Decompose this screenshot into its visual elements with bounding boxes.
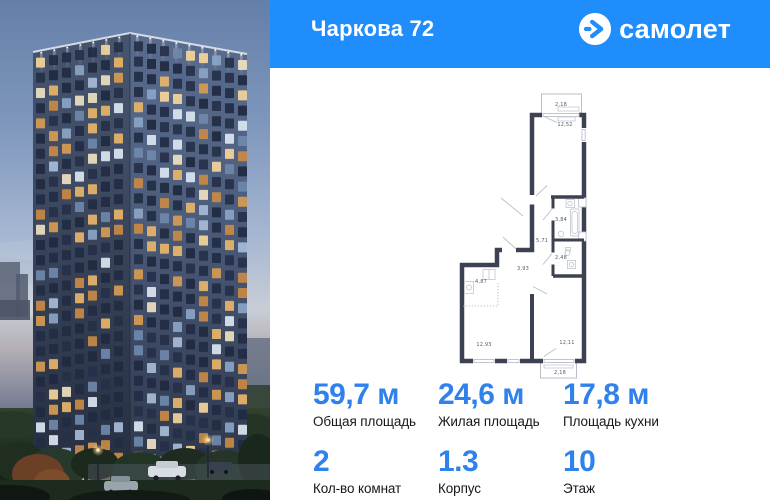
stat-kitchen-area: 17,8 м Площадь кухни [563,378,688,429]
stat-building: 1.3 Корпус [438,445,563,496]
apartment-panel: 2,1812,523,845,712,483,934,8712,9312,112… [270,68,770,500]
building-photo-art [0,0,270,500]
stat-total-area-value: 59,7 м [313,378,438,411]
complex-title: Чаркова 72 [311,16,434,42]
room-area-label: 3,84 [555,217,567,223]
listing-card: Чаркова 72 самолет [0,0,770,500]
room-area-label: 12,52 [557,122,572,128]
tower [33,33,247,500]
stat-kitchen-area-value: 17,8 м [563,378,688,411]
room-area-label: 4,87 [475,279,487,285]
apartment-stats: 59,7 м Общая площадь 24,6 м Жилая площад… [313,378,688,496]
brand-logo[interactable]: самолет [578,12,731,46]
room-area-label: 12,11 [559,340,574,346]
building-photo [0,0,270,500]
header-bar: Чаркова 72 самолет [270,0,770,68]
room-area-label: 5,71 [536,238,548,244]
stat-floor: 10 Этаж [563,445,688,496]
stat-rooms: 2 Кол-во комнат [313,445,438,496]
room-area-label: 3,93 [517,266,529,272]
brand-name: самолет [619,16,731,43]
floor-plan: 2,1812,523,845,712,483,934,8712,9312,112… [440,80,610,380]
stat-living-area-value: 24,6 м [438,378,563,411]
stat-rooms-value: 2 [313,445,438,478]
samolet-logo-icon [578,12,612,46]
stat-rooms-label: Кол-во комнат [313,481,438,496]
room-area-label: 2,18 [554,370,566,376]
room-area-label: 12,93 [476,342,491,348]
stat-living-area: 24,6 м Жилая площадь [438,378,563,429]
stat-floor-value: 10 [563,445,688,478]
stat-total-area-label: Общая площадь [313,414,438,429]
stat-living-area-label: Жилая площадь [438,414,563,429]
room-area-label: 2,18 [555,102,567,108]
stat-kitchen-area-label: Площадь кухни [563,414,688,429]
stat-building-label: Корпус [438,481,563,496]
stat-building-value: 1.3 [438,445,563,478]
outer-walls [462,115,584,361]
stat-total-area: 59,7 м Общая площадь [313,378,438,429]
stat-floor-label: Этаж [563,481,688,496]
room-area-label: 2,48 [555,255,567,261]
